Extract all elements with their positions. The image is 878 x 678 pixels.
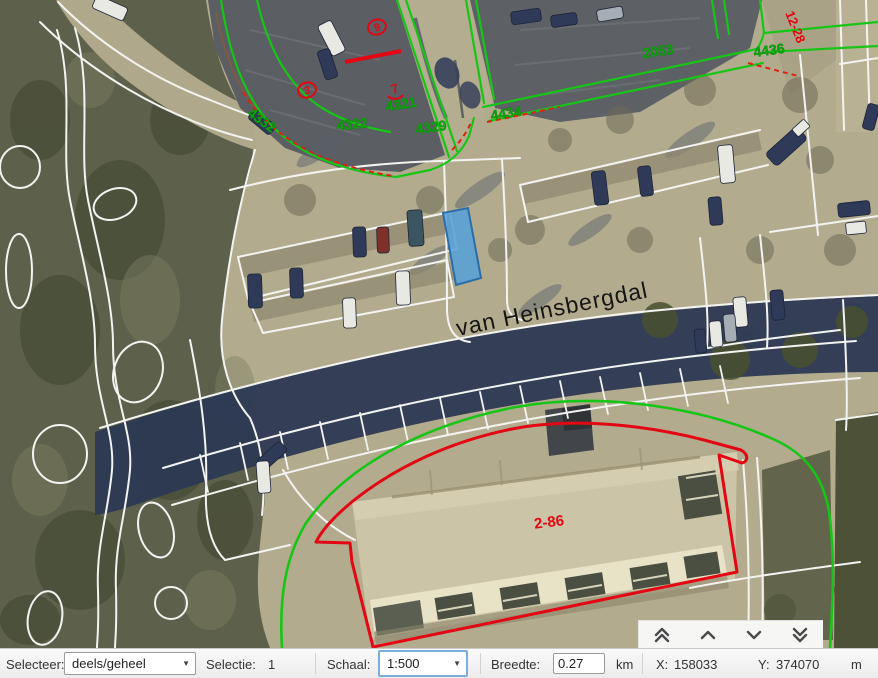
- breedte-label: Breedte:: [491, 657, 540, 672]
- scroll-up-button[interactable]: [693, 623, 723, 647]
- x-coordinate-label: X:: [656, 657, 668, 672]
- map-viewport[interactable]: 4332 4322 4321 4329 4434 2053 4436 9 3 7…: [0, 0, 878, 648]
- dropdown-caret-icon: ▼: [453, 659, 461, 668]
- chevron-up-icon: [700, 630, 716, 640]
- toolbar-divider: [315, 653, 316, 674]
- selectie-label: Selectie:: [206, 657, 256, 672]
- schaal-select[interactable]: 1:500 ▼: [378, 650, 468, 677]
- schaal-label: Schaal:: [327, 657, 370, 672]
- selecteer-label: Selecteer:: [6, 657, 65, 672]
- red-label-2-86: 2-86: [533, 512, 565, 533]
- selecteer-select[interactable]: deels/geheel ▼: [64, 652, 196, 675]
- scroll-page-up-button[interactable]: [647, 623, 677, 647]
- parcel-label: 4322: [336, 114, 369, 133]
- gis-application-window: 4332 4322 4321 4329 4434 2053 4436 9 3 7…: [0, 0, 878, 678]
- breedte-unit-label: km: [616, 657, 633, 672]
- x-coordinate-value: 158033: [674, 657, 717, 672]
- selectie-count: 1: [268, 657, 275, 672]
- y-coordinate-value: 374070: [776, 657, 819, 672]
- breedte-input[interactable]: [553, 653, 605, 674]
- coordinate-unit-label: m: [851, 657, 862, 672]
- chevron-down-icon: [746, 630, 762, 640]
- toolbar-divider: [642, 653, 643, 674]
- dropdown-caret-icon: ▼: [182, 659, 190, 668]
- scroll-down-button[interactable]: [739, 623, 769, 647]
- double-chevron-down-icon: [792, 627, 808, 643]
- scroll-page-down-button[interactable]: [785, 623, 815, 647]
- schaal-selected-value: 1:500: [387, 656, 420, 671]
- map-scroll-panel: [638, 620, 823, 648]
- status-toolbar: Selecteer: deels/geheel ▼ Selectie: 1 Sc…: [0, 648, 878, 678]
- y-coordinate-label: Y:: [758, 657, 770, 672]
- double-chevron-up-icon: [654, 627, 670, 643]
- selecteer-selected-value: deels/geheel: [72, 656, 146, 671]
- toolbar-divider: [480, 653, 481, 674]
